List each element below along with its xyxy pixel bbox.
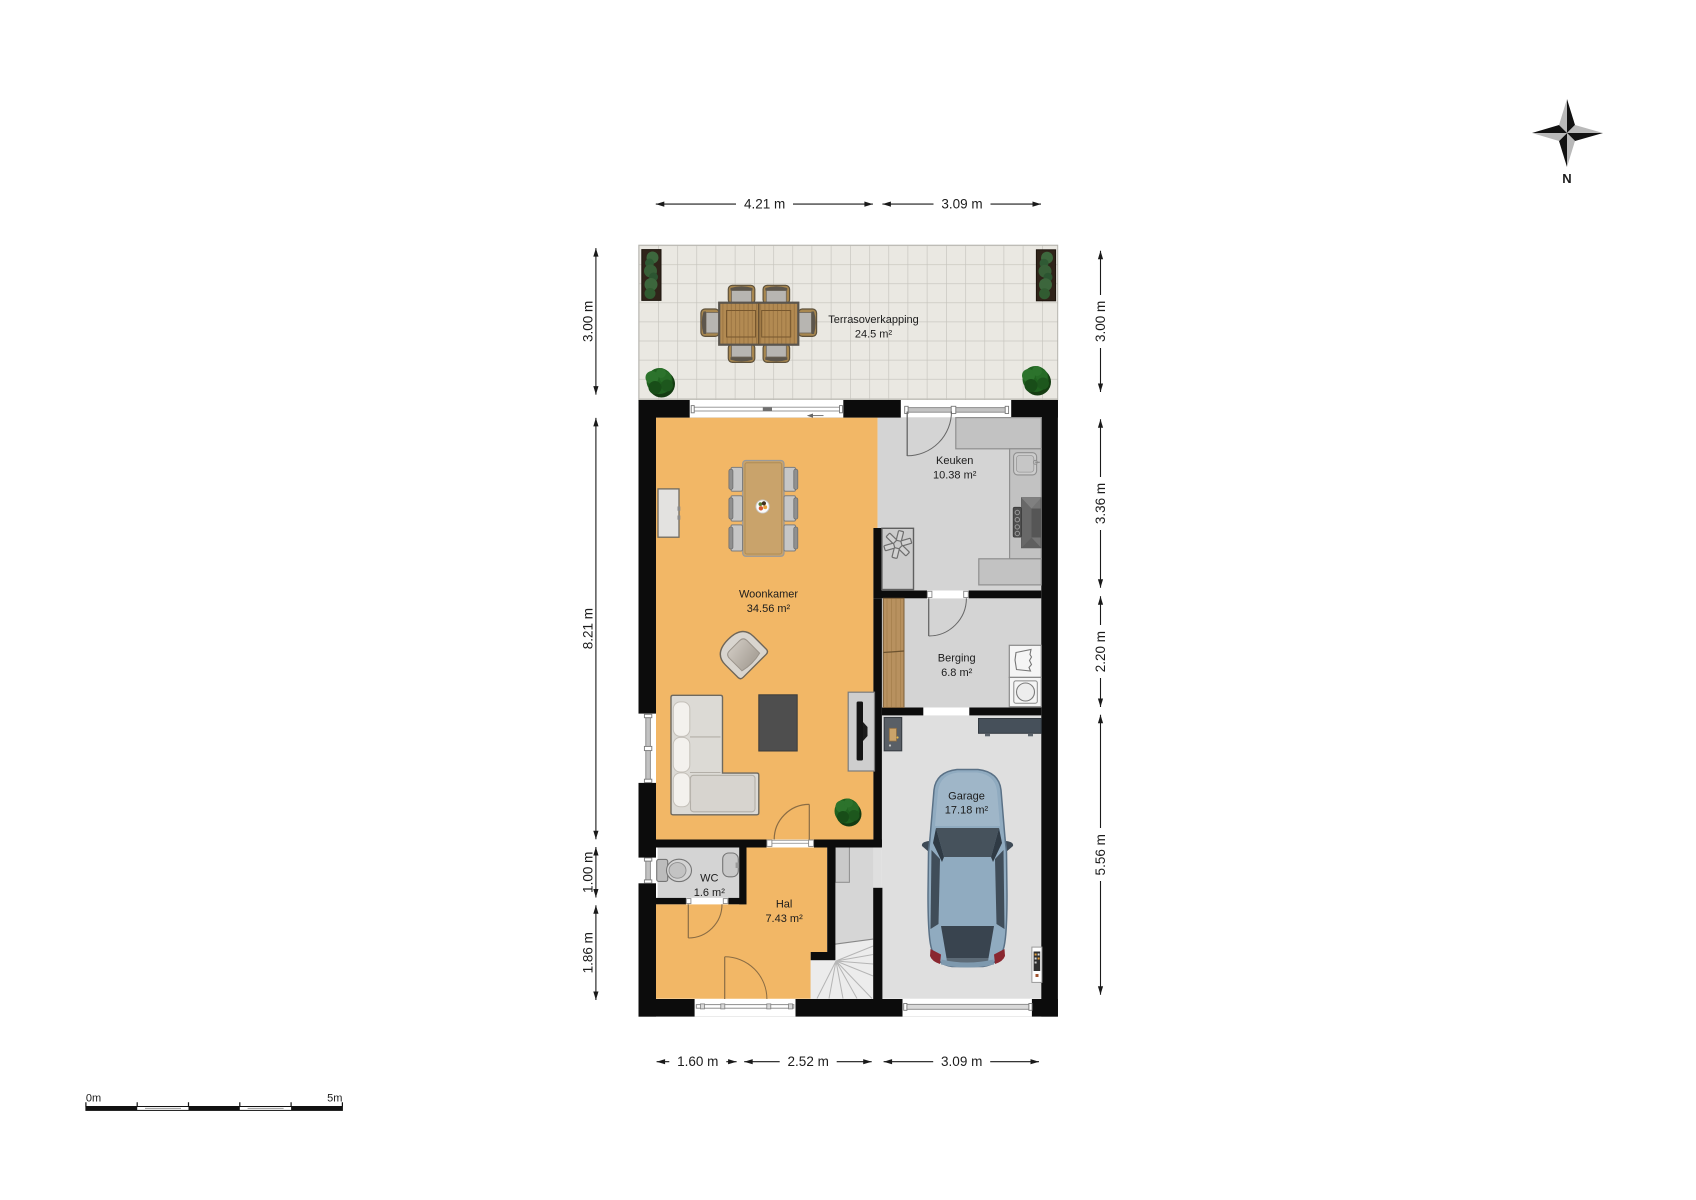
svg-text:17.18 m²: 17.18 m²: [945, 805, 989, 817]
svg-text:Keuken: Keuken: [936, 455, 973, 467]
svg-text:3.09 m: 3.09 m: [941, 197, 982, 212]
svg-text:1.00 m: 1.00 m: [581, 852, 596, 893]
svg-text:5m: 5m: [327, 1093, 342, 1105]
svg-text:2.52 m: 2.52 m: [788, 1054, 829, 1069]
svg-text:1.86 m: 1.86 m: [581, 932, 596, 973]
svg-text:Garage: Garage: [948, 790, 985, 802]
svg-text:1.6 m²: 1.6 m²: [694, 887, 726, 899]
svg-text:2.20 m: 2.20 m: [1093, 631, 1108, 672]
svg-text:Woonkamer: Woonkamer: [739, 589, 798, 601]
svg-text:10.38 m²: 10.38 m²: [933, 469, 977, 481]
svg-text:7.43 m²: 7.43 m²: [765, 913, 803, 925]
svg-text:1.60 m: 1.60 m: [677, 1054, 718, 1069]
svg-text:3.09 m: 3.09 m: [941, 1054, 982, 1069]
svg-text:4.21 m: 4.21 m: [744, 197, 785, 212]
svg-text:3.36 m: 3.36 m: [1093, 483, 1108, 524]
svg-text:8.21 m: 8.21 m: [581, 608, 596, 649]
svg-text:3.00 m: 3.00 m: [581, 301, 596, 342]
svg-text:N: N: [1562, 171, 1571, 186]
svg-text:WC: WC: [700, 873, 718, 885]
svg-text:Terrasoverkapping: Terrasoverkapping: [828, 314, 919, 326]
svg-text:6.8 m²: 6.8 m²: [941, 667, 973, 679]
svg-text:Berging: Berging: [938, 653, 976, 665]
svg-text:5.56 m: 5.56 m: [1093, 834, 1108, 875]
svg-text:34.56 m²: 34.56 m²: [747, 603, 791, 615]
svg-text:24.5 m²: 24.5 m²: [855, 328, 893, 340]
svg-text:Hal: Hal: [776, 899, 793, 911]
svg-text:0m: 0m: [86, 1093, 101, 1105]
svg-text:3.00 m: 3.00 m: [1093, 301, 1108, 342]
